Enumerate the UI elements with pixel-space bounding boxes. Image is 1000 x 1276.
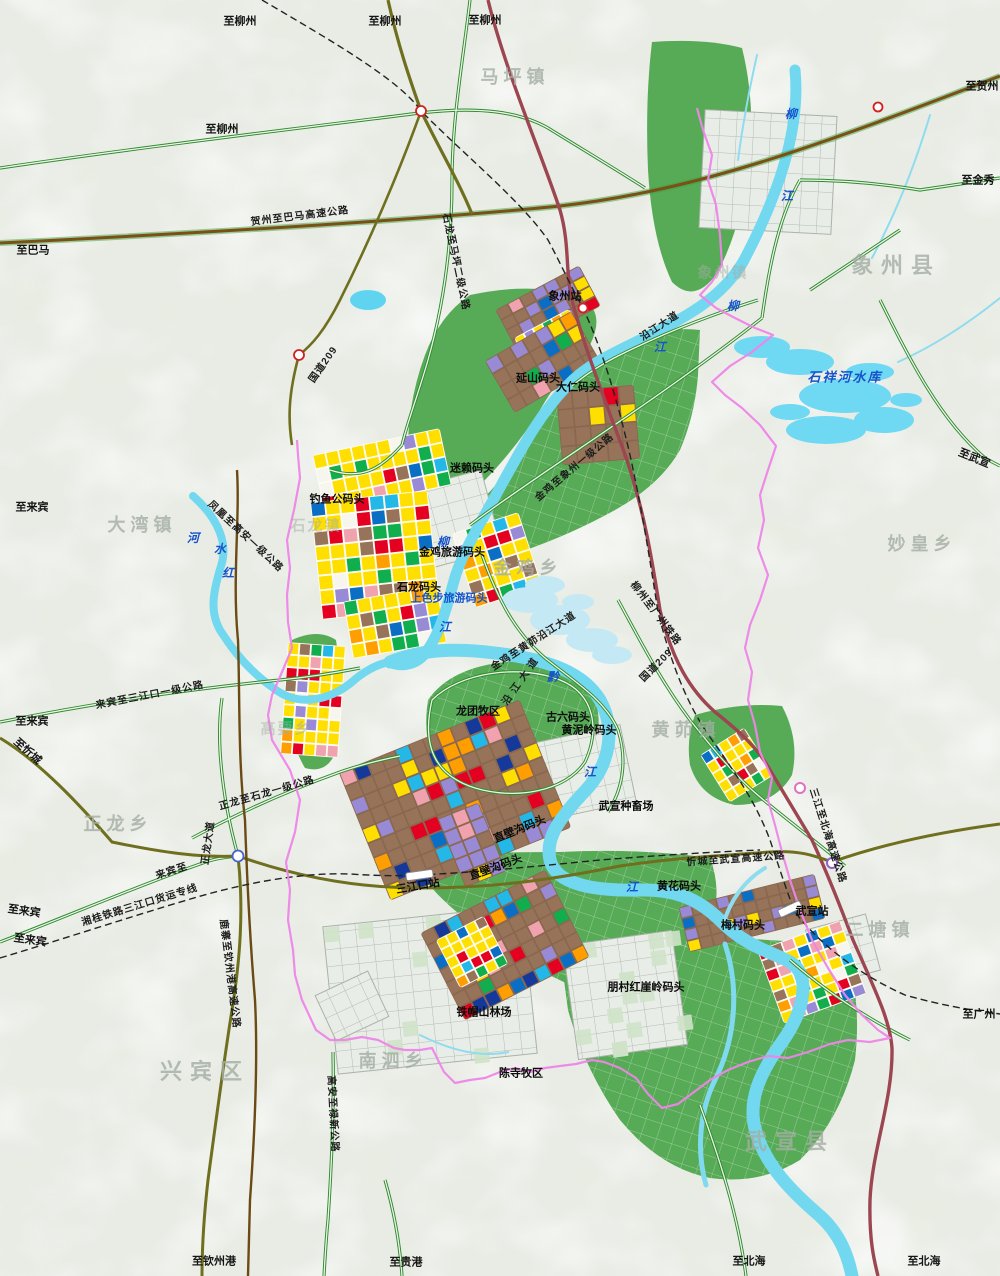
interchange-icon	[874, 103, 883, 112]
small-lake	[350, 290, 386, 310]
planning-map: 至柳州至柳州至柳州至贺州至柳州至金秀至巴马至来宾至来宾至忻城至来宾至来宾至武宣至…	[0, 0, 1000, 1276]
interchange-icon	[294, 350, 304, 360]
interchange-icon	[795, 783, 805, 793]
terrain-texture	[0, 0, 1000, 1276]
station-xiangzhou-icon	[579, 304, 588, 313]
interchange-icon	[233, 851, 244, 862]
interchange-icon	[416, 106, 426, 116]
map-canvas	[0, 0, 1000, 1276]
interchange-icon	[827, 858, 837, 868]
